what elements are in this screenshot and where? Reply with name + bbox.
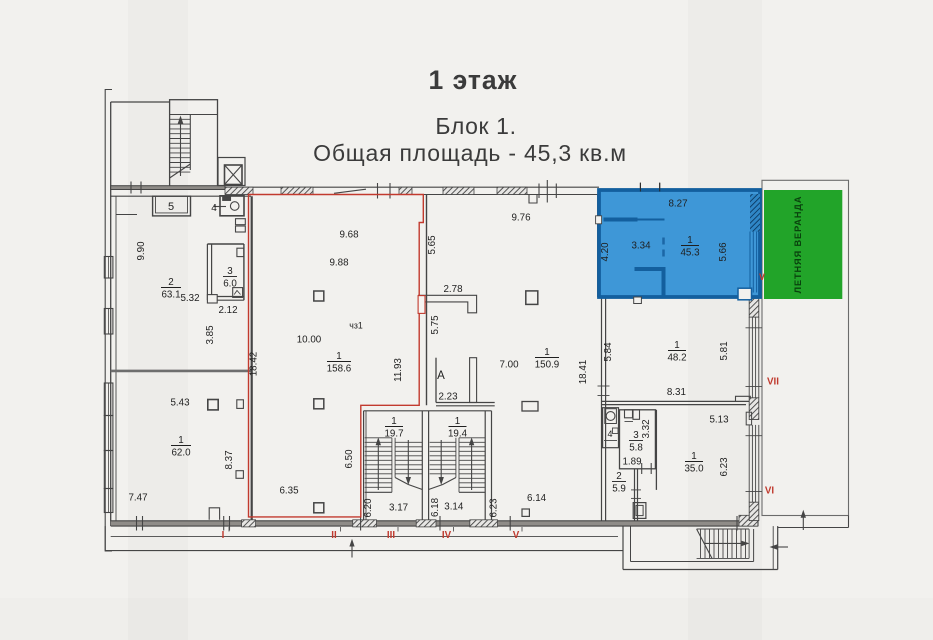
svg-text:4: 4 <box>211 203 217 214</box>
svg-text:35.0: 35.0 <box>684 464 704 475</box>
svg-text:5.66: 5.66 <box>718 242 729 262</box>
svg-text:48.2: 48.2 <box>667 353 686 364</box>
svg-text:2: 2 <box>168 277 173 288</box>
svg-text:VII: VII <box>767 377 779 388</box>
svg-text:62.0: 62.0 <box>171 448 191 459</box>
svg-text:Общая площадь - 45,3 кв.м: Общая площадь - 45,3 кв.м <box>313 140 627 166</box>
svg-text:5.8: 5.8 <box>629 443 643 454</box>
svg-text:1: 1 <box>691 451 696 462</box>
svg-text:150.9: 150.9 <box>535 360 560 371</box>
svg-text:6.23: 6.23 <box>719 457 730 477</box>
svg-text:63.1: 63.1 <box>161 290 180 301</box>
svg-text:4: 4 <box>607 429 612 439</box>
svg-text:5.13: 5.13 <box>709 415 729 426</box>
svg-text:2.23: 2.23 <box>438 392 458 403</box>
svg-text:18.41: 18.41 <box>578 360 589 385</box>
svg-text:1: 1 <box>178 435 183 446</box>
svg-text:6.14: 6.14 <box>527 493 547 504</box>
svg-text:6.20: 6.20 <box>363 498 374 518</box>
svg-text:1: 1 <box>336 351 341 362</box>
svg-text:10.00: 10.00 <box>297 335 322 346</box>
svg-text:5.65: 5.65 <box>427 235 438 255</box>
svg-text:1: 1 <box>455 416 460 427</box>
svg-text:VI: VI <box>765 486 775 497</box>
svg-text:5.32: 5.32 <box>180 293 199 304</box>
svg-text:7.47: 7.47 <box>128 493 147 504</box>
svg-text:1 этаж: 1 этаж <box>429 65 518 95</box>
svg-text:5: 5 <box>168 201 174 213</box>
svg-text:9.76: 9.76 <box>511 213 531 224</box>
svg-text:2: 2 <box>616 471 621 482</box>
svg-text:5.84: 5.84 <box>603 342 614 362</box>
svg-text:9.90: 9.90 <box>136 241 147 261</box>
svg-text:2.12: 2.12 <box>218 305 237 316</box>
svg-text:6.18: 6.18 <box>430 497 441 517</box>
svg-text:V: V <box>513 530 520 541</box>
svg-text:3.14: 3.14 <box>444 502 464 513</box>
svg-text:V: V <box>759 272 765 282</box>
svg-text:11.93: 11.93 <box>393 358 404 382</box>
svg-text:9.68: 9.68 <box>339 230 359 241</box>
svg-text:1: 1 <box>674 340 679 351</box>
svg-text:6.35: 6.35 <box>279 486 299 497</box>
svg-text:II: II <box>331 530 337 541</box>
svg-text:2.78: 2.78 <box>443 284 463 295</box>
svg-text:45.3: 45.3 <box>680 248 700 259</box>
svg-text:1: 1 <box>391 416 396 427</box>
svg-text:19.4: 19.4 <box>448 429 468 440</box>
svg-text:Блок 1.: Блок 1. <box>435 113 516 139</box>
svg-text:1.89: 1.89 <box>622 457 641 468</box>
svg-text:3: 3 <box>227 266 233 277</box>
svg-text:3.34: 3.34 <box>631 241 651 252</box>
svg-text:IV: IV <box>442 530 452 541</box>
svg-text:5.9: 5.9 <box>612 484 626 495</box>
svg-text:158.6: 158.6 <box>327 364 352 375</box>
svg-text:I: I <box>222 530 225 541</box>
svg-text:3.17: 3.17 <box>389 503 408 514</box>
svg-text:1: 1 <box>687 235 692 246</box>
svg-text:8.27: 8.27 <box>668 199 687 210</box>
svg-text:III: III <box>387 530 395 541</box>
svg-text:5.81: 5.81 <box>719 341 730 360</box>
svg-text:6.50: 6.50 <box>344 449 355 469</box>
svg-text:19.7: 19.7 <box>384 429 403 440</box>
svg-text:6.0: 6.0 <box>223 279 237 290</box>
svg-text:3.32: 3.32 <box>641 419 652 438</box>
svg-text:5.43: 5.43 <box>170 398 190 409</box>
svg-text:6.23: 6.23 <box>489 498 500 518</box>
svg-text:5.75: 5.75 <box>430 315 441 335</box>
svg-text:8.31: 8.31 <box>667 387 686 398</box>
svg-text:3.85: 3.85 <box>205 325 216 345</box>
svg-text:1: 1 <box>544 347 549 358</box>
svg-text:7.00: 7.00 <box>499 360 519 371</box>
svg-text:А: А <box>437 370 445 382</box>
svg-text:ЛЕТНЯЯ ВЕРАНДА: ЛЕТНЯЯ ВЕРАНДА <box>793 196 803 294</box>
svg-text:9.88: 9.88 <box>329 258 349 269</box>
svg-text:чз1: чз1 <box>349 321 363 331</box>
svg-text:3: 3 <box>633 430 639 441</box>
svg-text:4.20: 4.20 <box>600 242 611 262</box>
svg-text:18.42: 18.42 <box>249 352 260 377</box>
svg-text:8.37: 8.37 <box>224 450 235 469</box>
